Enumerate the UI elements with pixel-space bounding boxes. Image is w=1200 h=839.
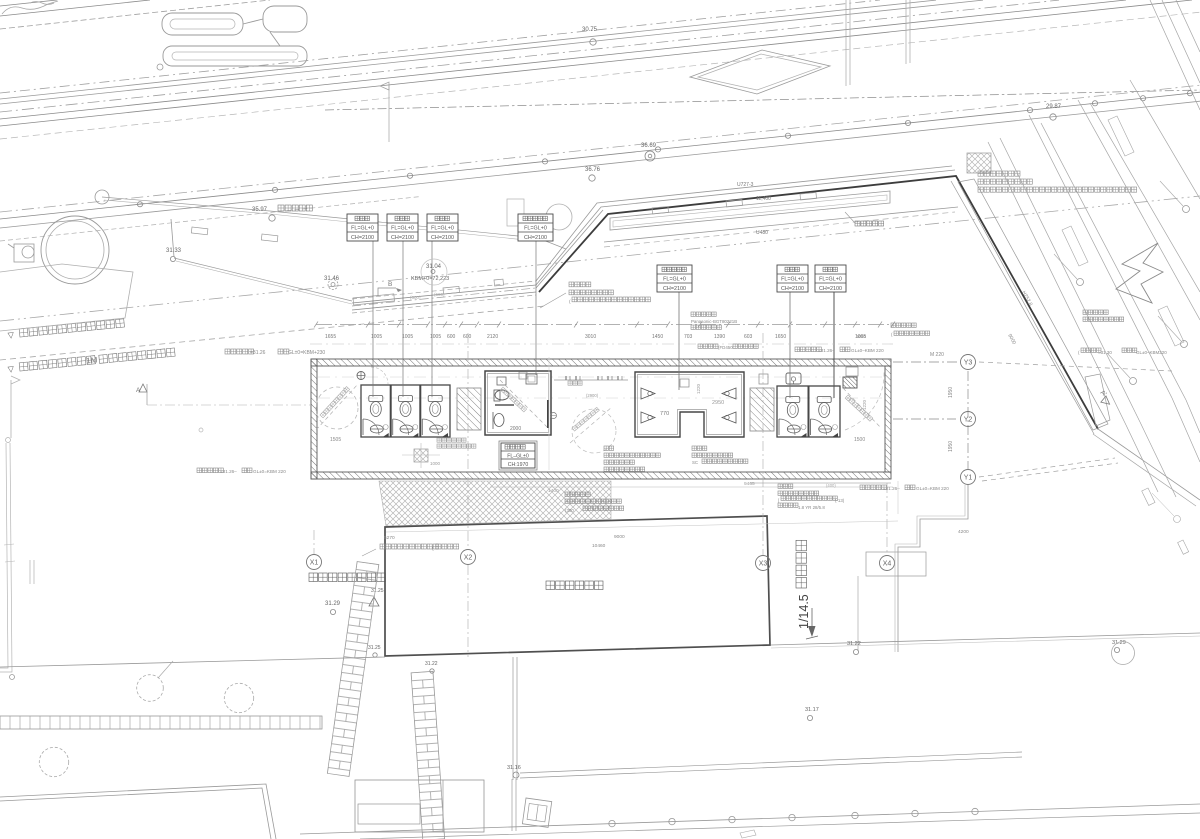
svg-text:X4: X4 [883, 560, 892, 567]
svg-text:1655: 1655 [325, 334, 336, 340]
svg-text:1/14.5: 1/14.5 [797, 594, 811, 629]
svg-text:FL–GL±0: FL–GL±0 [507, 454, 529, 460]
svg-text:1390: 1390 [714, 334, 725, 340]
svg-text:1.8 YR 28/5.8: 1.8 YR 28/5.8 [798, 505, 825, 510]
svg-text:CH=2100: CH=2100 [524, 235, 547, 241]
svg-text:(2900): (2900) [586, 393, 599, 398]
svg-text:SC: SC [692, 460, 698, 465]
svg-text:CH=2100: CH=2100 [781, 286, 804, 292]
svg-text:31.29: 31.29 [1112, 640, 1126, 646]
svg-text:U480: U480 [756, 230, 768, 236]
svg-text:X1: X1 [310, 559, 319, 566]
svg-text:1650: 1650 [775, 334, 786, 340]
svg-text:=31.26–: =31.26– [818, 348, 835, 353]
svg-text:(300: (300 [565, 508, 574, 513]
svg-text:=31.30: =31.30 [1098, 350, 1112, 355]
svg-text:Y3: Y3 [964, 359, 973, 366]
svg-text:Y2: Y2 [964, 416, 973, 423]
svg-text:770: 770 [660, 411, 669, 417]
svg-text:(FD450: (FD450 [718, 345, 733, 350]
svg-text:1950: 1950 [948, 441, 954, 452]
svg-text:11,400: 11,400 [756, 196, 771, 202]
svg-text:1505: 1505 [330, 437, 341, 443]
svg-text:FL=GL+0: FL=GL+0 [431, 226, 454, 232]
svg-text:FL=GL+0: FL=GL+0 [351, 226, 374, 232]
svg-text:9465: 9465 [744, 481, 755, 487]
svg-text:1500: 1500 [854, 437, 865, 443]
svg-text:X3: X3 [759, 560, 768, 567]
svg-text:31.17: 31.17 [805, 707, 819, 713]
svg-text:CH=2100: CH=2100 [431, 235, 454, 241]
svg-text:CH:1970: CH:1970 [508, 462, 529, 468]
svg-text:(600): (600) [434, 292, 445, 297]
svg-text:1M: 1M [86, 355, 98, 365]
svg-text:600: 600 [447, 334, 456, 340]
svg-text:29.87: 29.87 [1046, 104, 1062, 110]
svg-text:1220: 1220 [862, 399, 867, 410]
svg-text:Panasonic-BGT80221B: Panasonic-BGT80221B [691, 319, 737, 324]
svg-text:GL±0–KBM220: GL±0–KBM220 [1136, 350, 1167, 355]
svg-text:GL±0–KBM 220: GL±0–KBM 220 [851, 348, 884, 353]
svg-text:U727-3: U727-3 [737, 182, 754, 188]
svg-text:FL=GL+0: FL=GL+0 [781, 277, 804, 283]
svg-text:CH=2100: CH=2100 [351, 235, 374, 241]
svg-text:1005: 1005 [402, 334, 413, 340]
svg-text:1000: 1000 [430, 461, 441, 466]
svg-text:Y1: Y1 [964, 474, 973, 481]
svg-text:FL=GL+0: FL=GL+0 [524, 226, 547, 232]
svg-text:1005: 1005 [371, 334, 382, 340]
svg-text:FL=GL+0: FL=GL+0 [391, 226, 414, 232]
svg-text:CH=2100: CH=2100 [663, 286, 686, 292]
svg-text:(400): (400) [826, 483, 836, 488]
svg-text:31.04: 31.04 [426, 264, 442, 270]
svg-text:GL±0=KBM 220: GL±0=KBM 220 [916, 486, 949, 491]
svg-text:31.25: 31.25 [368, 645, 381, 651]
svg-text:31.46: 31.46 [324, 276, 340, 282]
svg-text:CH=2100: CH=2100 [819, 286, 842, 292]
svg-text:2950: 2950 [712, 400, 724, 406]
svg-text:36.69: 36.69 [641, 143, 657, 149]
svg-text:31.29: 31.29 [325, 601, 341, 607]
svg-text:1220: 1220 [696, 383, 701, 394]
svg-text:=31.26: =31.26 [250, 350, 266, 356]
svg-text:(600): (600) [410, 295, 421, 300]
svg-text:CH=2100: CH=2100 [391, 235, 414, 241]
svg-text:9000: 9000 [614, 534, 625, 540]
svg-text:31.16: 31.16 [507, 765, 521, 771]
svg-text:600: 600 [463, 334, 472, 340]
svg-text:2000: 2000 [510, 426, 521, 432]
svg-text:GL±0=KBM+230: GL±0=KBM+230 [288, 350, 325, 356]
svg-text:3010: 3010 [585, 334, 596, 340]
svg-text:B: B [388, 281, 392, 288]
svg-text:1005: 1005 [430, 334, 441, 340]
svg-text:4200: 4200 [958, 529, 969, 535]
svg-text:2120: 2120 [487, 334, 498, 340]
svg-text:M 220: M 220 [930, 352, 944, 358]
svg-text:1050: 1050 [856, 334, 867, 339]
svg-text:A: A [136, 387, 141, 394]
svg-text:FL=GL+0: FL=GL+0 [819, 277, 842, 283]
svg-text:5270: 5270 [384, 535, 395, 541]
svg-text:X2: X2 [464, 554, 473, 561]
svg-text:703: 703 [684, 334, 693, 340]
svg-text:30.75: 30.75 [582, 27, 598, 33]
svg-text:FL=GL+0: FL=GL+0 [663, 277, 686, 283]
svg-text:603: 603 [744, 334, 753, 340]
svg-text:1450: 1450 [652, 334, 663, 340]
svg-text:(-13): (-13) [835, 498, 845, 503]
svg-text:10460: 10460 [592, 543, 606, 549]
svg-text:31.22: 31.22 [425, 661, 438, 667]
svg-text:36.76: 36.76 [585, 167, 601, 173]
svg-text:31.22: 31.22 [847, 641, 861, 647]
svg-text:GL±0=KBM 220: GL±0=KBM 220 [253, 469, 286, 474]
svg-text:=31.26–: =31.26– [220, 469, 237, 474]
svg-text:1950: 1950 [948, 387, 954, 398]
